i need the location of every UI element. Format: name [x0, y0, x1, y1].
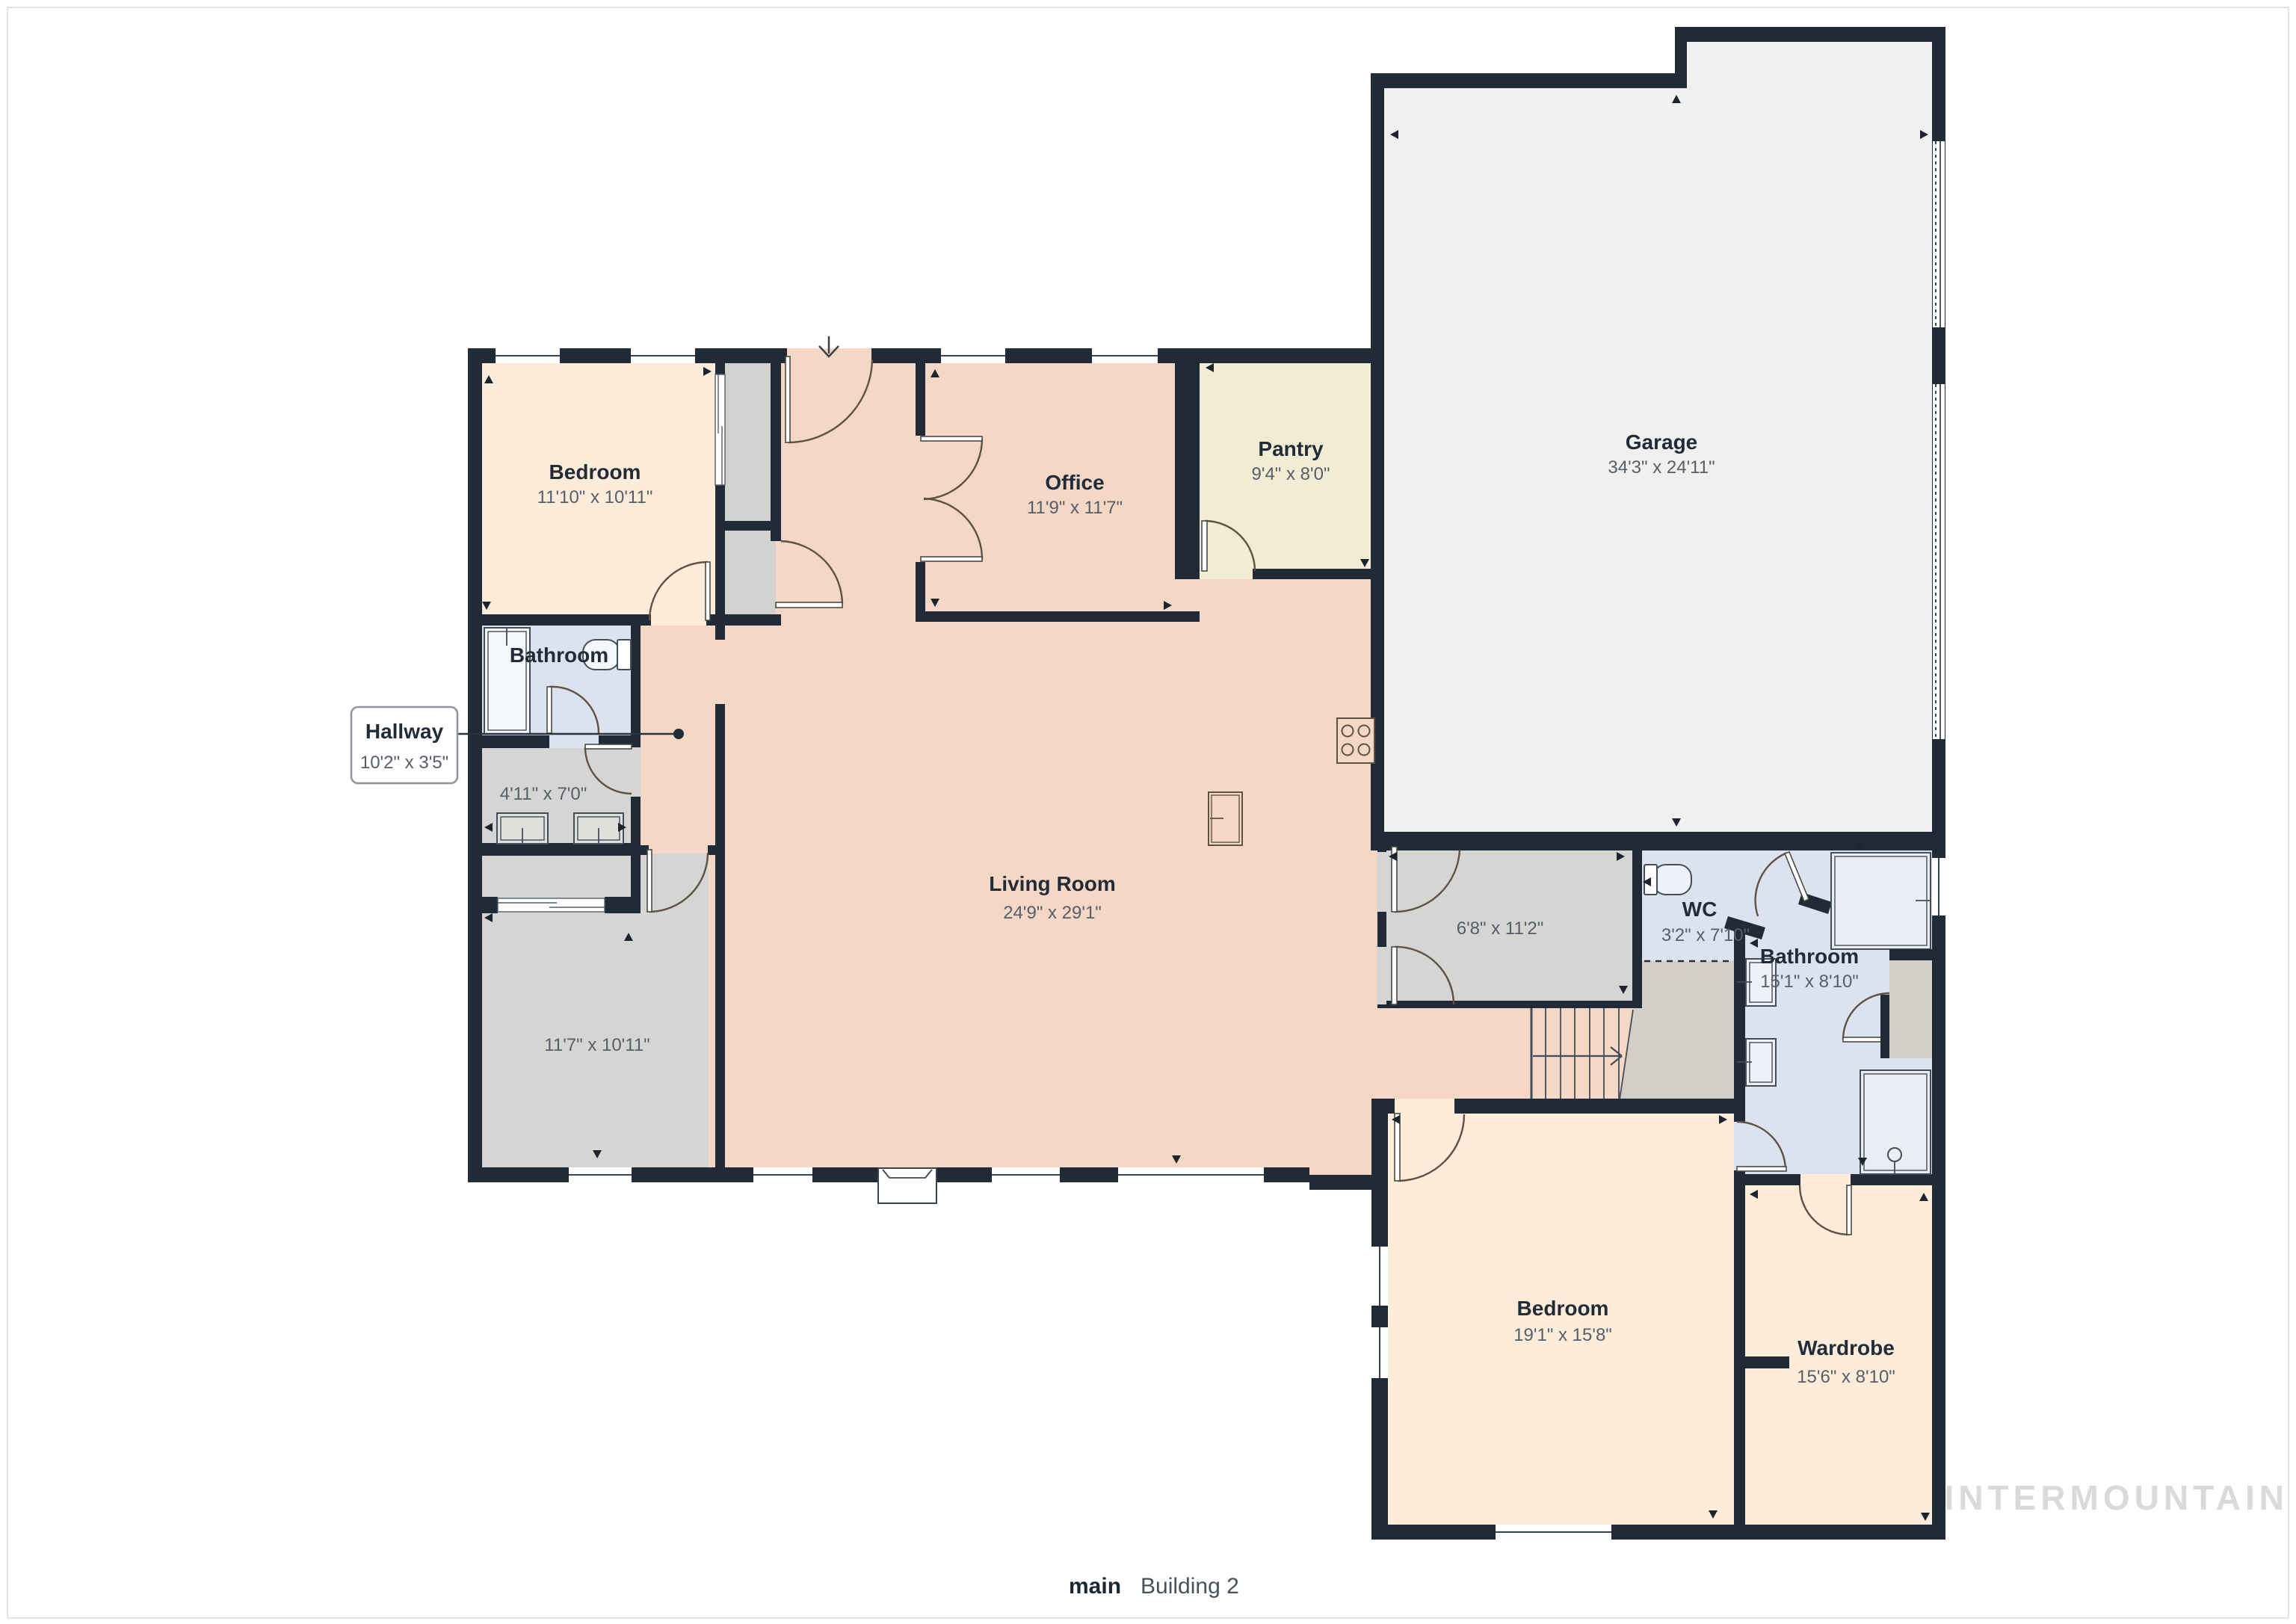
svg-text:19'1" x 15'8": 19'1" x 15'8": [1513, 1325, 1612, 1345]
svg-text:Wardrobe: Wardrobe: [1797, 1336, 1895, 1359]
svg-text:Hallway: Hallway: [365, 720, 444, 743]
svg-text:Living Room: Living Room: [989, 872, 1116, 895]
svg-text:11'10" x 10'11": 11'10" x 10'11": [537, 487, 653, 507]
svg-text:Bedroom: Bedroom: [1517, 1297, 1609, 1320]
svg-text:10'2" x 3'5": 10'2" x 3'5": [360, 753, 448, 773]
svg-text:3'2" x 7'10": 3'2" x 7'10": [1661, 925, 1750, 945]
svg-text:Pantry: Pantry: [1258, 437, 1324, 460]
svg-text:Bathroom: Bathroom: [510, 643, 608, 667]
svg-text:Bathroom: Bathroom: [1760, 945, 1859, 968]
svg-text:4'11" x 7'0": 4'11" x 7'0": [500, 784, 587, 804]
svg-text:9'4" x 8'0": 9'4" x 8'0": [1252, 464, 1330, 484]
svg-text:INTERMOUNTAIN: INTERMOUNTAIN: [1945, 1478, 2289, 1517]
svg-text:24'9" x 29'1": 24'9" x 29'1": [1003, 903, 1102, 923]
svg-text:Office: Office: [1045, 471, 1104, 494]
svg-text:11'7" x 10'11": 11'7" x 10'11": [544, 1035, 649, 1055]
svg-text:WC: WC: [1682, 898, 1718, 921]
svg-text:6'8" x 11'2": 6'8" x 11'2": [1457, 918, 1544, 939]
svg-text:34'3" x 24'11": 34'3" x 24'11": [1608, 457, 1715, 478]
svg-text:mainBuilding 2: mainBuilding 2: [1069, 1574, 1239, 1599]
svg-text:Garage: Garage: [1626, 430, 1698, 454]
svg-text:15'1" x 8'10": 15'1" x 8'10": [1760, 972, 1859, 992]
svg-text:11'9" x 11'7": 11'9" x 11'7": [1027, 498, 1123, 518]
svg-text:Bedroom: Bedroom: [549, 460, 641, 484]
svg-text:15'6" x 8'10": 15'6" x 8'10": [1797, 1367, 1895, 1387]
